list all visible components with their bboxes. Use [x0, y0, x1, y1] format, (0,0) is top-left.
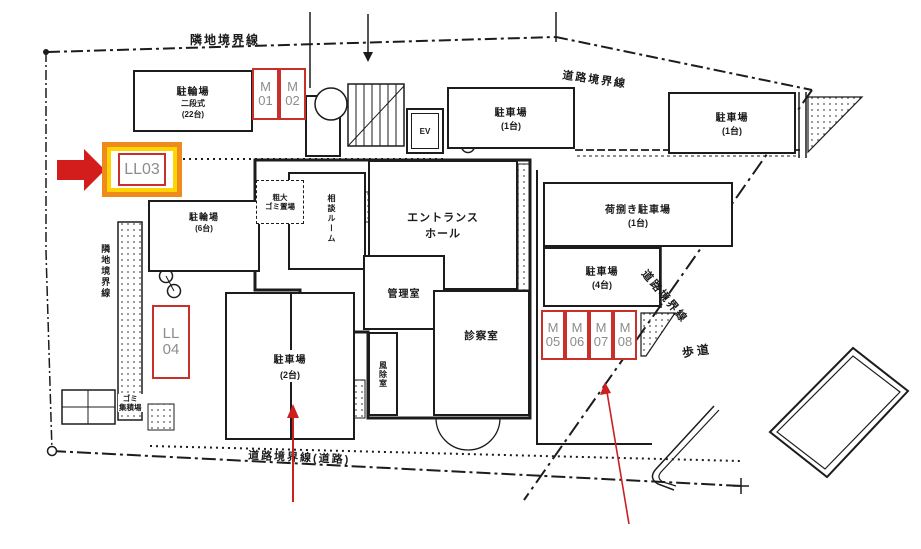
spot-label: 05	[546, 335, 560, 349]
spot-m01[interactable]: M 01	[252, 68, 279, 120]
elevator: EV	[406, 108, 444, 154]
area-capacity: (2台)	[277, 367, 303, 382]
area-label: 粗大	[273, 193, 288, 202]
area-label: 集積場	[119, 403, 142, 412]
area-label: 駐車場	[716, 109, 749, 124]
curb-lines	[652, 348, 908, 490]
area-label: ゴミ置場	[265, 202, 295, 211]
parking-center-area: 駐車場 (2台)	[225, 292, 355, 440]
elevator-label: EV	[420, 127, 431, 136]
room-label: 風除室	[378, 361, 389, 388]
spot-label: M	[287, 80, 298, 94]
spot-label: 08	[618, 335, 632, 349]
site-plan-canvas: 駐輪場 二段式 (22台) 駐車場 (1台) 駐車場 (1台) 荷捌き駐車場 (…	[0, 0, 921, 549]
spot-label: 02	[285, 94, 299, 108]
room-label: 管理室	[388, 285, 421, 300]
spot-label: M	[596, 321, 607, 335]
spot-m08[interactable]: M 08	[613, 310, 637, 360]
area-capacity: (1台)	[501, 119, 521, 132]
area-capacity: (1台)	[628, 216, 648, 229]
spot-m06[interactable]: M 06	[565, 310, 589, 360]
spot-label: M	[548, 321, 559, 335]
bike-parking-left-area: 駐輪場 (6台)	[148, 200, 260, 272]
loading-parking-area: 荷捌き駐車場 (1台)	[543, 182, 733, 247]
area-label: 駐輪場	[189, 210, 219, 223]
room-label: エントランス	[407, 209, 479, 225]
area-label: 駐車場	[586, 263, 619, 278]
trash-enclosure	[62, 390, 115, 424]
spot-label: LL	[163, 326, 180, 342]
consult-room-label: 相談ルーム	[326, 186, 336, 252]
spot-m05[interactable]: M 05	[541, 310, 565, 360]
area-capacity: (1台)	[722, 124, 742, 137]
spot-label: 01	[258, 94, 272, 108]
room-label: 診察室	[464, 328, 499, 343]
room-label: ホール	[425, 225, 461, 241]
area-sublabel: 二段式	[181, 98, 205, 109]
spot-label: 07	[594, 335, 608, 349]
area-capacity: (4台)	[592, 278, 612, 291]
boundary-top-label: 隣地境界線	[190, 33, 260, 48]
spot-label: M	[620, 321, 631, 335]
area-label: 荷捌き駐車場	[605, 201, 671, 216]
spot-ll03[interactable]: LL03	[118, 153, 166, 186]
exam-room: 診察室	[433, 290, 530, 416]
windbreak-room: 風除室	[368, 332, 398, 416]
spot-ll03-highlight-inner: LL03	[107, 147, 177, 192]
spot-ll04[interactable]: LL 04	[152, 305, 190, 379]
spot-label: M	[260, 80, 271, 94]
spot-label: M	[572, 321, 583, 335]
area-label: ゴミ	[119, 394, 142, 403]
spot-label: 04	[163, 342, 180, 358]
parking-top-area: 駐車場 (1台)	[447, 87, 575, 149]
spot-label: LL03	[124, 161, 160, 179]
bike-parking-top-area: 駐輪場 二段式 (22台)	[133, 70, 253, 132]
area-label: 駐車場	[271, 350, 310, 367]
spot-ll03-highlight: LL03	[102, 142, 182, 197]
area-capacity: (6台)	[195, 223, 213, 234]
boundary-left-label: 隣地境界線	[99, 208, 110, 334]
area-label: 駐車場	[495, 104, 528, 119]
spot-m07[interactable]: M 07	[589, 310, 613, 360]
parking-top-right-area: 駐車場 (1台)	[668, 92, 796, 154]
area-capacity: (22台)	[182, 109, 204, 120]
bulky-trash-area: 粗大 ゴミ置場	[256, 180, 304, 224]
area-label: 駐輪場	[177, 83, 210, 98]
spot-m02[interactable]: M 02	[279, 68, 306, 120]
trash-area-label: ゴミ 集積場	[118, 394, 143, 412]
spot-label: 06	[570, 335, 584, 349]
